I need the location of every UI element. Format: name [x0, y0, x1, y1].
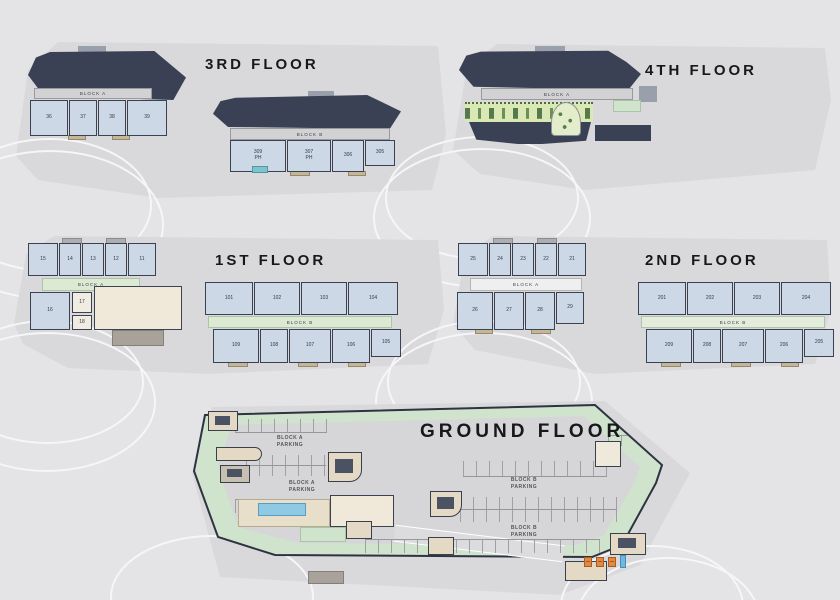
drive-gate: [428, 537, 454, 555]
room: 104: [348, 282, 398, 315]
room: 23: [512, 243, 534, 276]
parking-stalls: [235, 419, 327, 433]
stair-core: [639, 86, 657, 102]
gatehouse-core: [437, 497, 454, 509]
block-b-corridor: BLOCK B: [230, 128, 390, 140]
pavilion: [346, 521, 372, 539]
room: 203: [734, 282, 780, 315]
gatehouse-a: [328, 452, 362, 482]
block-a-rooms-bottom: 26 27 28 29: [457, 292, 585, 330]
stair-block: [220, 465, 250, 483]
parking-label: BLOCK B PARKING: [504, 525, 544, 538]
floor-3-plan: 3RD FLOOR BLOCK A 36 37 38 39 BLOCK B 30…: [8, 38, 448, 206]
room: 207: [722, 329, 764, 363]
block-b-rooms-top: 201 202 203 204: [638, 282, 832, 315]
parking-label: BLOCK B PARKING: [504, 477, 544, 490]
room: 21: [558, 243, 586, 276]
floor-title: 1ST FLOOR: [215, 252, 326, 269]
room: 18: [72, 315, 92, 330]
parking-label: BLOCK A PARKING: [282, 480, 322, 493]
room: 22: [535, 243, 557, 276]
room: 14: [59, 243, 81, 276]
room: 209: [646, 329, 692, 363]
room: 29: [556, 292, 584, 324]
block-a-corridor: BLOCK A: [34, 88, 152, 99]
stair-core: [227, 469, 242, 477]
block-b-rooms-bottom: 209 208 207 206 205: [646, 329, 835, 363]
room: 101: [205, 282, 253, 315]
lawn: [300, 527, 346, 542]
ground-floor-plan: GROUND FLOOR BLOCK A PARKING BLOCK A PAR…: [180, 395, 690, 600]
room: 38: [98, 100, 126, 136]
floor-4-plan: 4TH FLOOR BLOCK A: [445, 38, 837, 200]
room: 202: [687, 282, 733, 315]
floor-2-plan: 2ND FLOOR 25 24 23 22 21 BLOCK A 26 27 2…: [445, 228, 837, 380]
room: 16: [30, 292, 70, 330]
block-a-roof: [459, 50, 641, 90]
block-b-rooms-bottom: 109 108 107 106 105: [213, 329, 402, 363]
room: 102: [254, 282, 300, 315]
round-terrace: [551, 102, 581, 136]
room: 15: [28, 243, 58, 276]
right-block-upper: [595, 441, 621, 467]
room: 17: [72, 292, 92, 313]
floor-title: 3RD FLOOR: [205, 56, 319, 73]
room: 105: [371, 329, 401, 357]
room: 201: [638, 282, 686, 315]
cabana-icon: [596, 557, 604, 567]
service-block: [308, 571, 344, 584]
parking-label: BLOCK A PARKING: [270, 435, 310, 448]
block-a-rooms-top: 15 14 13 12 11: [28, 243, 157, 276]
gatehouse-core: [335, 459, 353, 473]
entry-porch: [112, 330, 164, 346]
block-b-rooms-top: 101 102 103 104: [205, 282, 399, 315]
block-a-rooms: 36 37 38 39: [30, 100, 168, 136]
room: 13: [82, 243, 104, 276]
block-b-corridor: BLOCK B: [208, 316, 392, 328]
cabana-icon: [584, 557, 592, 567]
ramp: [216, 447, 262, 461]
room: 103: [301, 282, 347, 315]
room: 306: [332, 140, 364, 172]
lobby-core: [215, 416, 230, 425]
floor-title: GROUND FLOOR: [420, 421, 624, 443]
pool: [258, 503, 306, 516]
cabana-icon: [608, 557, 616, 567]
parking-stalls: [463, 461, 607, 477]
room: 208: [693, 329, 721, 363]
floor-1-plan: 1ST FLOOR 15 14 13 12 11 BLOCK A 16 17 1…: [8, 228, 448, 380]
block-a-corridor: BLOCK A: [481, 88, 633, 100]
right-block-lower: [610, 533, 646, 555]
block-a-rooms-top: 25 24 23 22 21: [458, 243, 587, 276]
room: 25: [458, 243, 488, 276]
room: 106: [332, 329, 370, 363]
floor-title: 4TH FLOOR: [645, 62, 757, 79]
green-patch: [613, 100, 641, 112]
block-a-corridor: BLOCK A: [470, 278, 582, 291]
parking-stalls: [365, 539, 600, 553]
floor-title: 2ND FLOOR: [645, 252, 759, 269]
room: 204: [781, 282, 831, 315]
room: 37: [69, 100, 97, 136]
parking-stalls: [246, 465, 326, 476]
room: 108: [260, 329, 288, 363]
room: 39: [127, 100, 167, 136]
entrance-lobby: [208, 411, 238, 431]
room: 28: [525, 292, 555, 330]
block-core: [618, 538, 637, 548]
room: 307 PH: [287, 140, 331, 172]
block-b-roof: [213, 95, 401, 129]
plunge-pool: [252, 166, 268, 173]
site-plan-canvas: 3RD FLOOR BLOCK A 36 37 38 39 BLOCK B 30…: [0, 0, 840, 600]
room: 109: [213, 329, 259, 363]
room: 26: [457, 292, 493, 330]
block-b-corridor: BLOCK B: [641, 316, 825, 328]
room: 24: [489, 243, 511, 276]
room: 36: [30, 100, 68, 136]
room: 206: [765, 329, 803, 363]
lobby: [94, 286, 182, 330]
block-a-rooms-bottom: 16: [30, 292, 71, 330]
room: 305: [365, 140, 395, 166]
room: 205: [804, 329, 834, 357]
room: 107: [289, 329, 331, 363]
room: 27: [494, 292, 524, 330]
gatehouse-b: [430, 491, 462, 517]
room: 11: [128, 243, 156, 276]
parking-stalls: [460, 509, 617, 522]
water-feature: [620, 555, 626, 568]
room: 12: [105, 243, 127, 276]
lower-roof-wing: [595, 125, 651, 141]
